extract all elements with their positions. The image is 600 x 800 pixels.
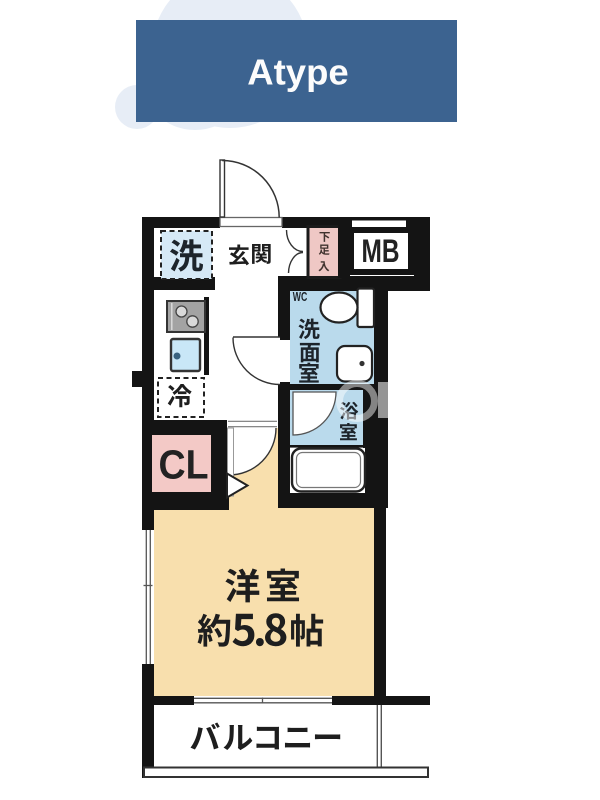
svg-text:MB: MB [362,233,400,269]
svg-text:WC: WC [293,289,308,304]
svg-text:Atype: Atype [247,52,348,93]
svg-text:CL: CL [159,442,209,488]
